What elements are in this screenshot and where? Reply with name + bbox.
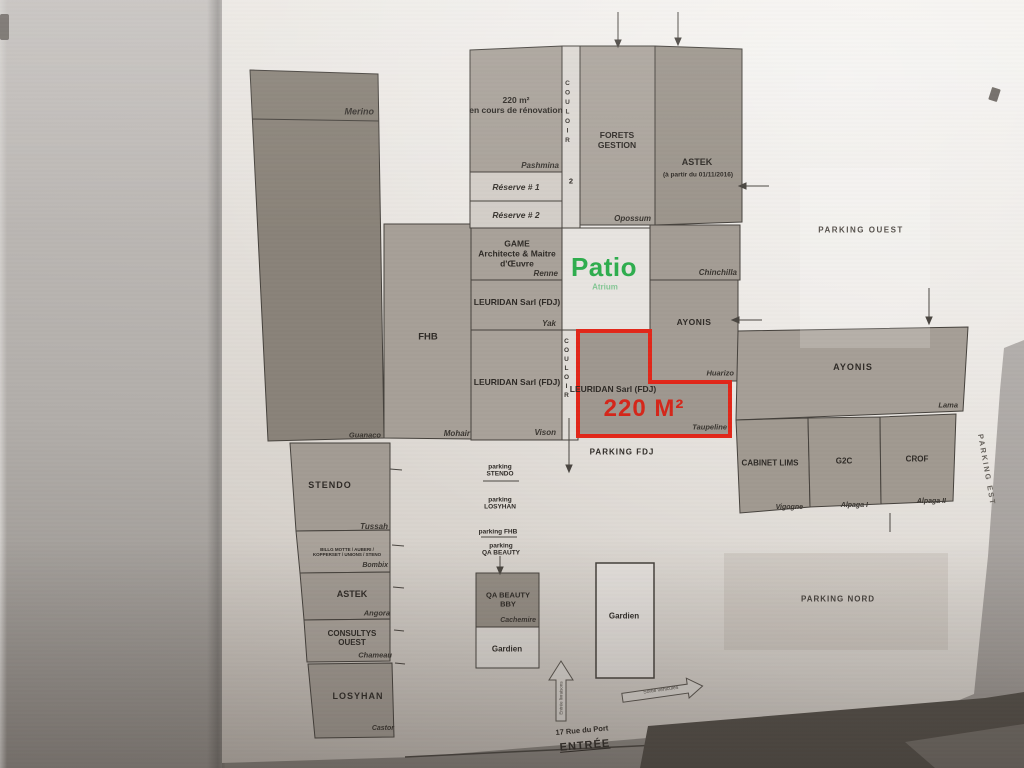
parking-stack-item-fhb: parking FHB: [479, 528, 518, 535]
room-label-ayonis-small: AYONIS: [677, 318, 712, 328]
shared-line2: KOPPERSET / UNIONS / STENO: [313, 552, 381, 557]
parking-fdj-label: PARKING FDJ: [590, 447, 655, 456]
consultys-line1: CONSULTYS: [328, 629, 377, 638]
top-arrow2-head: [675, 38, 681, 45]
parking-nord-label: PARKING NORD: [801, 594, 875, 603]
room-ayonis-small-shape: [650, 280, 738, 381]
photo-of-floorplan: Merino Guanaco 220 m² en cours de rénova…: [0, 0, 1024, 768]
room-label-leuridan1: LEURIDAN Sarl (FDJ): [474, 298, 560, 308]
patio-subtitle: Atrium: [592, 282, 618, 291]
room-label-cabinet-lims: CABINET LIMS: [742, 458, 799, 467]
room-corner-chameau: Chameau: [358, 651, 392, 660]
consultys-line2: OUEST: [328, 638, 377, 647]
room-corner-vigogne: Vigogne: [776, 504, 803, 512]
room-corner-taupeline: Taupeline: [692, 423, 727, 432]
room-corner-guanaco: Guanaco: [349, 431, 381, 440]
room-sublabel-astek-top: (à partir du 01/11/2016): [663, 171, 733, 178]
up-arrow-text: Entrée livraisons: [558, 681, 563, 714]
stack1-line2: STENDO: [486, 471, 513, 478]
stack2-line2: LOSYHAN: [484, 504, 516, 511]
gardien-large-label: Gardien: [609, 611, 639, 620]
stack1-line1: parking: [486, 464, 513, 471]
parking-stack-item-stendo: parking STENDO: [486, 464, 513, 479]
parking-ouest-area: [800, 168, 930, 348]
room-label-losyhan: LOSYHAN: [332, 691, 383, 701]
room-corner-yak: Yak: [542, 319, 556, 328]
room-corner-renne: Renne: [534, 269, 558, 278]
room-corner-pashmina: Pashmina: [521, 161, 559, 170]
room-corner-bombix: Bombix: [362, 562, 388, 570]
room-corner-merino: Merino: [344, 107, 374, 117]
room-label-ayonis-large: AYONIS: [833, 362, 873, 372]
room-merino-shape: [250, 70, 384, 441]
room-label-renovation: 220 m² en cours de rénovation: [469, 96, 563, 116]
room-corner-huarizo: Huarizo: [706, 369, 734, 378]
tick2: [392, 545, 404, 546]
room-label-astek-top: ASTEK: [682, 157, 713, 167]
room-label-game: GAME Architecte & Maitre d'Œuvre: [478, 239, 555, 268]
room-label-astek-south: ASTEK: [337, 589, 368, 599]
room-label-g2c: G2C: [836, 456, 852, 465]
stack4-line1: parking: [482, 543, 520, 550]
room-label-leuridan2: LEURIDAN Sarl (FDJ): [474, 378, 560, 388]
tick4: [394, 630, 404, 631]
gardien-small-label: Gardien: [492, 644, 522, 653]
room-label-stendo: STENDO: [308, 480, 352, 490]
room-label-shared: BILLG MOTTE / AUBERI / KOPPERSET / UNION…: [313, 547, 381, 557]
corridor-arrow-head: [566, 465, 572, 472]
room-astek-top-shape: [655, 46, 742, 225]
room-label-reserve1: Réserve # 1: [492, 183, 539, 193]
room-corner-mohair: Mohair: [444, 429, 470, 438]
tick5: [395, 663, 405, 664]
parking-stack-item-losyhan: parking LOSYHAN: [484, 497, 516, 512]
qa-line2: BBY: [486, 600, 530, 609]
parking-stack-item-qa-beauty: parking QA BEAUTY: [482, 543, 520, 558]
room-corner-castor: Castor: [372, 725, 394, 733]
highlight-company-label: LEURIDAN Sarl (FDJ): [570, 385, 656, 395]
parking-ouest-label: PARKING OUEST: [818, 225, 904, 234]
room-corner-alpaga1: Alpaga I: [841, 502, 868, 510]
room-corner-opossum: Opossum: [614, 214, 651, 223]
room-corner-angora: Angora: [364, 609, 390, 618]
street-line: [405, 745, 658, 757]
room-label-crof: CROF: [906, 454, 929, 463]
room-label-forets: FORETS GESTION: [598, 131, 636, 151]
room-corner-tussah: Tussah: [360, 522, 388, 531]
tick1: [390, 469, 402, 470]
patio-title: Patio: [571, 253, 637, 283]
stack4-line2: QA BEAUTY: [482, 550, 520, 557]
forets-line2: GESTION: [598, 141, 636, 151]
room-label-consultys: CONSULTYS OUEST: [328, 629, 377, 647]
room-corner-chinchilla: Chinchilla: [699, 268, 737, 277]
room-label-fhb: FHB: [418, 333, 438, 344]
room-label-reserve2: Réserve # 2: [492, 211, 539, 221]
room-corner-alpaga2: Alpaga II: [917, 498, 946, 506]
room-corner-lama: Lama: [938, 401, 958, 410]
game-line3: d'Œuvre: [478, 259, 555, 269]
room-corner-vison: Vison: [535, 428, 556, 437]
highlight-area-label: 220 M²: [604, 395, 685, 423]
stack2-line1: parking: [484, 497, 516, 504]
corridor2-label: COULOIR: [564, 80, 571, 190]
room-corner-cachemire: Cachemire: [500, 617, 536, 625]
room-label-qa-beauty: QA BEAUTY BBY: [486, 591, 530, 608]
renovation-line2: en cours de rénovation: [469, 106, 563, 116]
corridor2-number: 2: [569, 178, 573, 187]
tick3: [393, 587, 404, 588]
